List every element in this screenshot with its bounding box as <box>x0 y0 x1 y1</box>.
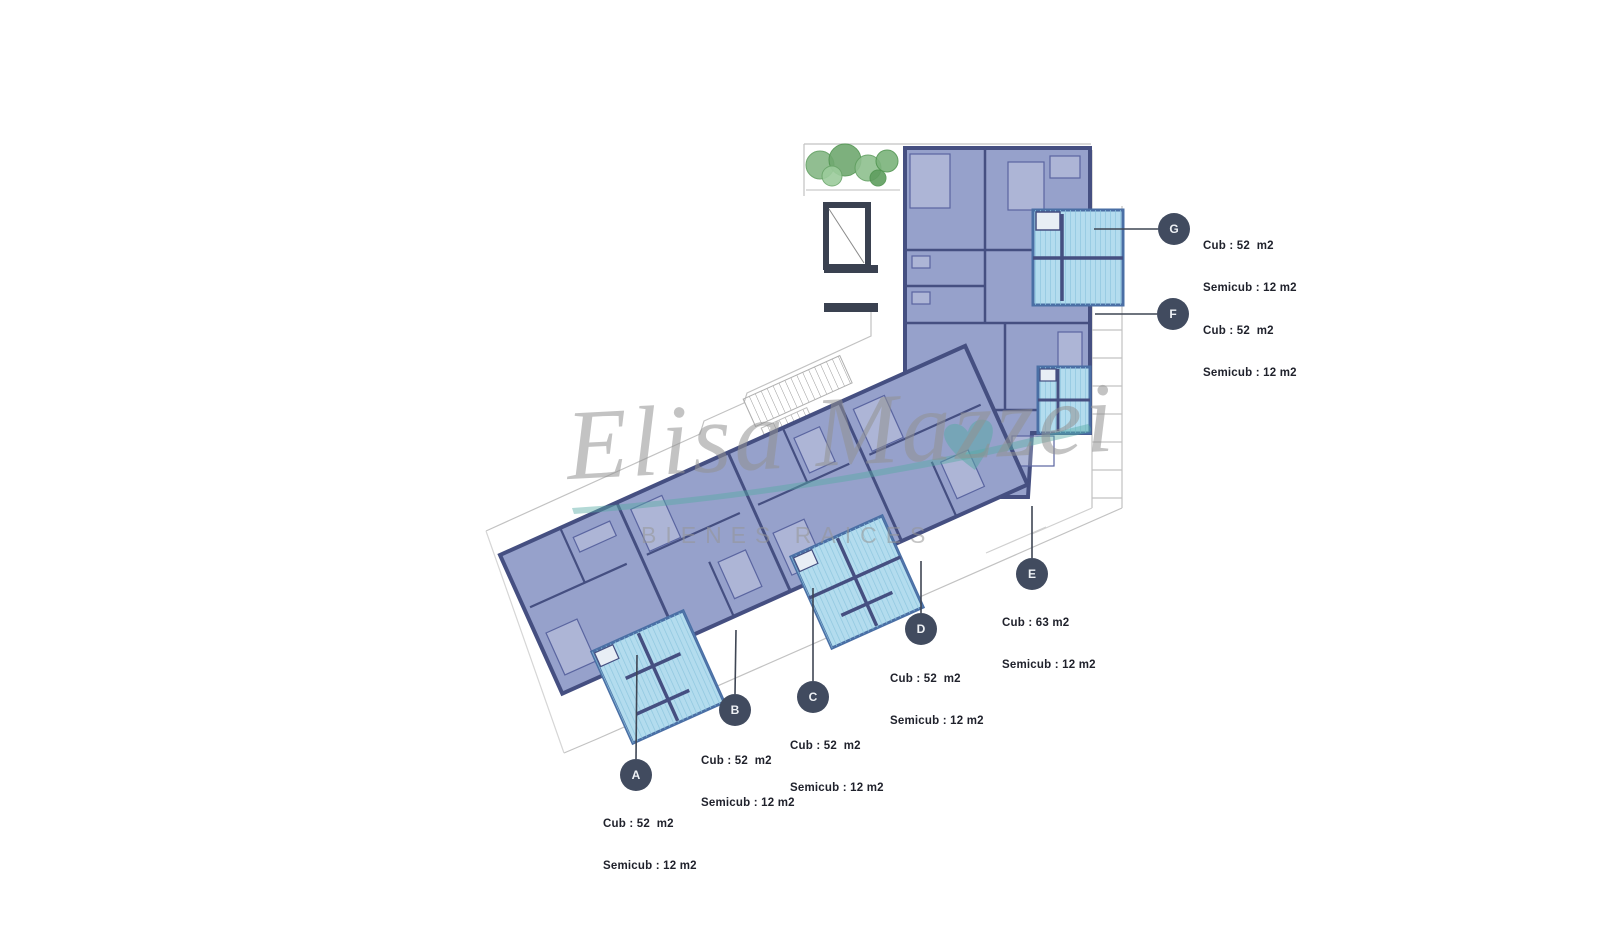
balcony-G <box>1033 210 1123 305</box>
unit-marker-a: A <box>620 759 652 791</box>
unit-g-cub: Cub : 52 m2 <box>1203 239 1297 253</box>
unit-marker-d: D <box>905 613 937 645</box>
unit-f-semicub: Semicub : 12 m2 <box>1203 366 1297 380</box>
unit-letter-f: F <box>1169 307 1176 321</box>
unit-label-d: Cub : 52 m2 Semicub : 12 m2 <box>890 644 984 756</box>
unit-g-semicub: Semicub : 12 m2 <box>1203 281 1297 295</box>
unit-letter-g: G <box>1169 222 1178 236</box>
unit-label-g: Cub : 52 m2 Semicub : 12 m2 <box>1203 211 1297 323</box>
unit-f-cub: Cub : 52 m2 <box>1203 324 1297 338</box>
unit-letter-a: A <box>632 768 641 782</box>
unit-d-semicub: Semicub : 12 m2 <box>890 714 984 728</box>
floor-plan-page: Elisa Mazzei BIENES RAICES A B C D E F G… <box>0 0 1600 950</box>
unit-c-cub: Cub : 52 m2 <box>790 739 884 753</box>
unit-marker-b: B <box>719 694 751 726</box>
unit-marker-e: E <box>1016 558 1048 590</box>
unit-marker-g: G <box>1158 213 1190 245</box>
stair-shaft <box>824 205 878 312</box>
unit-letter-e: E <box>1028 567 1036 581</box>
unit-e-cub: Cub : 63 m2 <box>1002 616 1096 630</box>
unit-marker-c: C <box>797 681 829 713</box>
balcony-F <box>1038 367 1090 433</box>
unit-e-semicub: Semicub : 12 m2 <box>1002 658 1096 672</box>
unit-label-b: Cub : 52 m2 Semicub : 12 m2 <box>701 726 795 838</box>
unit-label-a: Cub : 52 m2 Semicub : 12 m2 <box>603 789 697 901</box>
unit-label-c: Cub : 52 m2 Semicub : 12 m2 <box>790 711 884 823</box>
unit-letter-d: D <box>917 622 926 636</box>
unit-b-cub: Cub : 52 m2 <box>701 754 795 768</box>
plants <box>806 144 900 190</box>
unit-marker-f: F <box>1157 298 1189 330</box>
unit-d-cub: Cub : 52 m2 <box>890 672 984 686</box>
unit-a-semicub: Semicub : 12 m2 <box>603 859 697 873</box>
unit-c-semicub: Semicub : 12 m2 <box>790 781 884 795</box>
unit-b-semicub: Semicub : 12 m2 <box>701 796 795 810</box>
unit-label-e: Cub : 63 m2 Semicub : 12 m2 <box>1002 588 1096 700</box>
unit-a-cub: Cub : 52 m2 <box>603 817 697 831</box>
unit-letter-c: C <box>809 690 818 704</box>
unit-letter-b: B <box>731 703 740 717</box>
